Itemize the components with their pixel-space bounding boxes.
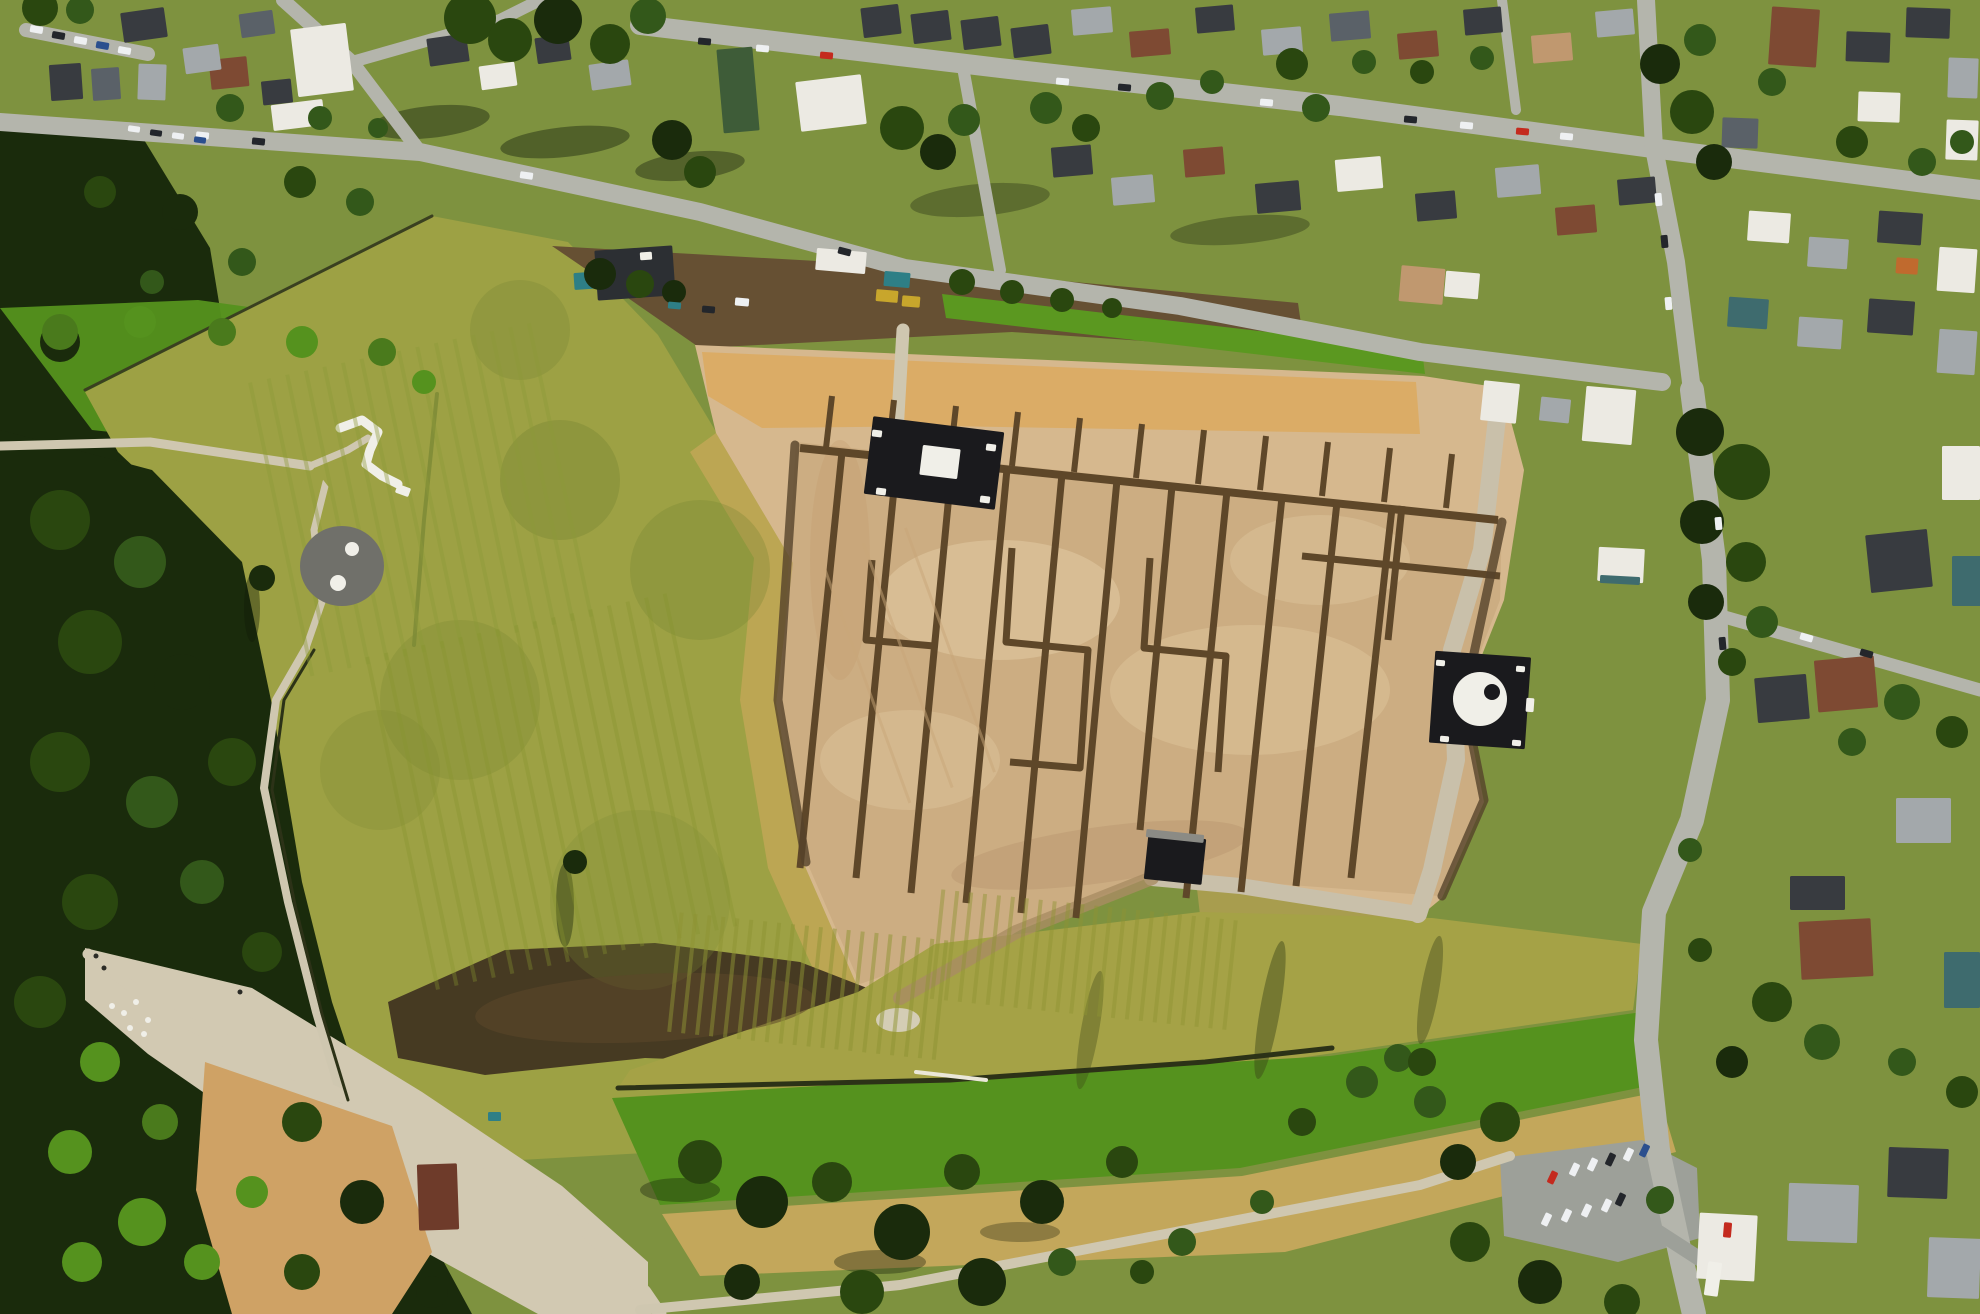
tree-shadow (980, 1222, 1060, 1242)
tree (84, 176, 116, 208)
tree (1168, 1228, 1196, 1256)
tree (488, 18, 532, 62)
park-shed (417, 1163, 459, 1230)
house (1255, 180, 1301, 214)
goose (133, 999, 139, 1005)
tree (1804, 1024, 1840, 1060)
tree (284, 166, 316, 198)
tree (1302, 94, 1330, 122)
house (1582, 386, 1637, 445)
plaza-circle (330, 575, 346, 591)
house (1397, 30, 1439, 59)
house-orange-roof (1895, 257, 1918, 274)
tree (1384, 1044, 1412, 1072)
house (1787, 1183, 1859, 1243)
tree (1950, 130, 1974, 154)
goose (121, 1010, 127, 1016)
house (1463, 6, 1503, 35)
tree (880, 106, 924, 150)
house (1129, 28, 1171, 57)
house (1727, 297, 1769, 330)
tree (1746, 606, 1778, 638)
tree (1908, 148, 1936, 176)
forest-canopy (126, 776, 178, 828)
shrub (412, 370, 436, 394)
car (1654, 193, 1662, 207)
tree (1346, 1066, 1378, 1098)
tree (652, 120, 692, 160)
tree (228, 248, 256, 276)
goose (109, 1003, 115, 1009)
tree (1450, 1222, 1490, 1262)
tank-foundation-notch (1484, 684, 1500, 700)
house (1877, 211, 1923, 246)
tree (662, 280, 686, 304)
tree (1714, 444, 1770, 500)
tree (1646, 1186, 1674, 1214)
house (1111, 174, 1155, 206)
tree (162, 194, 198, 230)
tree (874, 1204, 930, 1260)
tree (590, 24, 630, 64)
pad-north-white-center (919, 445, 960, 479)
tree (958, 1258, 1006, 1306)
house (1905, 7, 1950, 39)
house (1539, 396, 1571, 423)
house (1335, 156, 1384, 192)
house (1768, 6, 1820, 67)
hedge-tree (949, 269, 975, 295)
staging-car (668, 301, 682, 309)
house (1617, 176, 1657, 205)
tree (1470, 46, 1494, 70)
plaza-pad (300, 526, 384, 606)
tree (1946, 1076, 1978, 1108)
tree (1718, 648, 1746, 676)
tree (944, 1154, 980, 1190)
house (120, 7, 168, 43)
apartment-building (290, 23, 354, 97)
tree (584, 258, 616, 290)
forest-canopy (58, 610, 122, 674)
hedge-tree (1102, 298, 1122, 318)
tree (1020, 1180, 1064, 1224)
tree (1838, 728, 1866, 756)
goose (145, 1017, 151, 1023)
aerial-photo (0, 0, 1980, 1314)
car (698, 37, 712, 45)
house (1799, 918, 1874, 980)
pad-tab (872, 429, 883, 437)
maintenance-roof-vent (640, 252, 653, 261)
person (102, 966, 107, 971)
tree (626, 270, 654, 298)
house (1865, 529, 1933, 593)
tree (840, 1270, 884, 1314)
house (1947, 57, 1978, 98)
conifer (563, 850, 587, 874)
tree (308, 106, 332, 130)
car (820, 51, 834, 59)
house (1721, 117, 1758, 148)
pad-east-edge-white (1526, 698, 1535, 713)
teal-bench (488, 1112, 501, 1121)
pad-tab (1440, 736, 1449, 743)
tree (1146, 82, 1174, 110)
tree (1678, 838, 1702, 862)
tree (1888, 1048, 1916, 1076)
house (1329, 10, 1371, 41)
house (479, 62, 518, 91)
tree (1676, 408, 1724, 456)
tree (1670, 90, 1714, 134)
house (1183, 146, 1225, 177)
pad-tab (1436, 660, 1445, 667)
tree (1758, 68, 1786, 96)
forest-canopy (30, 732, 90, 792)
car (1404, 115, 1418, 123)
shrub (48, 1130, 92, 1174)
house (1867, 298, 1915, 335)
house (1845, 31, 1890, 63)
house (1896, 798, 1951, 843)
house (1927, 1237, 1980, 1299)
tree (1752, 982, 1792, 1022)
tree (282, 1102, 322, 1142)
tree (724, 1264, 760, 1300)
site-walkway (897, 330, 903, 432)
tree (812, 1162, 852, 1202)
shrub (184, 1244, 220, 1280)
staging-pickup (735, 297, 750, 306)
car (1260, 98, 1274, 106)
house (261, 78, 293, 105)
conifer (249, 565, 275, 591)
tree (1480, 1102, 1520, 1142)
person (238, 990, 243, 995)
shrub (236, 1176, 268, 1208)
car (1118, 83, 1132, 91)
shrub (286, 326, 318, 358)
tree (340, 1180, 384, 1224)
house (1944, 952, 1980, 1008)
commercial-white-roof (795, 74, 867, 132)
tree (1640, 44, 1680, 84)
tree (1936, 716, 1968, 748)
car (756, 44, 770, 52)
house (1747, 211, 1791, 244)
house (1937, 329, 1978, 376)
tree (140, 270, 164, 294)
house (1887, 1147, 1949, 1199)
pad-tab (1516, 666, 1525, 673)
house (1555, 204, 1597, 235)
forest-canopy (114, 536, 166, 588)
tree (1884, 684, 1920, 720)
pad-tab (980, 495, 991, 503)
car (1660, 235, 1668, 249)
tree (948, 104, 980, 136)
tree (1726, 542, 1766, 582)
excavator (876, 289, 899, 303)
house (1399, 265, 1446, 305)
car (1718, 637, 1726, 651)
tree (1130, 1260, 1154, 1284)
tree (1716, 1046, 1748, 1078)
rowhouse (960, 16, 1001, 50)
tree (1414, 1086, 1446, 1118)
goose (127, 1025, 133, 1031)
pad-tab (1512, 740, 1521, 747)
car (1056, 77, 1070, 85)
tree (678, 1140, 722, 1184)
house (1480, 380, 1520, 424)
forest-canopy (14, 976, 66, 1028)
forest-canopy (154, 654, 210, 710)
shrub (80, 1042, 120, 1082)
house (1754, 674, 1810, 723)
house (137, 64, 166, 101)
pad-tab (986, 443, 997, 451)
excavator (902, 295, 921, 308)
tree (1030, 92, 1062, 124)
tree (1106, 1146, 1138, 1178)
rowhouse (1010, 24, 1051, 58)
car (1664, 297, 1672, 311)
shrub (368, 338, 396, 366)
shrub (62, 1242, 102, 1282)
house (1595, 8, 1635, 37)
tree (1048, 1248, 1076, 1276)
tree (1410, 60, 1434, 84)
house (1857, 91, 1900, 122)
forest-canopy (30, 490, 90, 550)
tree (684, 156, 716, 188)
tree (216, 94, 244, 122)
shrub (118, 1198, 166, 1246)
forest-canopy (208, 738, 256, 786)
tree (1250, 1190, 1274, 1214)
house (1195, 4, 1235, 33)
rowhouse (910, 10, 951, 44)
house (1952, 556, 1980, 606)
forest-canopy (242, 932, 282, 972)
tree (1352, 50, 1376, 74)
rowhouse (860, 4, 901, 38)
tree (368, 118, 388, 138)
tree (1836, 126, 1868, 158)
house (1797, 317, 1843, 350)
hedge-tree (1050, 288, 1074, 312)
green-roof-building (716, 47, 759, 134)
tree (1288, 1108, 1316, 1136)
house (1071, 6, 1113, 35)
tree (1276, 48, 1308, 80)
tree (346, 188, 374, 216)
aerial-photo-stage (0, 0, 1980, 1314)
house (1790, 876, 1845, 910)
pad-tab (876, 487, 887, 495)
house (182, 44, 221, 75)
tree (1518, 1260, 1562, 1304)
plaza-circle (345, 542, 359, 556)
house (1942, 446, 1980, 500)
tree (1440, 1144, 1476, 1180)
teal-container (883, 271, 910, 288)
car (252, 137, 266, 145)
house (1807, 237, 1849, 270)
tree (736, 1176, 788, 1228)
tree (1408, 1048, 1436, 1076)
tree (1684, 24, 1716, 56)
house (1814, 655, 1878, 712)
shrub (208, 318, 236, 346)
house (1051, 144, 1093, 177)
tree (416, 1276, 448, 1308)
forest-canopy (180, 860, 224, 904)
house (1415, 190, 1457, 221)
tree (1072, 114, 1100, 142)
car (1714, 517, 1722, 531)
tree (1696, 144, 1732, 180)
shrub (142, 1104, 178, 1140)
conifer-shadow (556, 863, 574, 947)
house (1444, 271, 1480, 300)
house (1531, 32, 1573, 63)
tree (284, 1254, 320, 1290)
car (1460, 121, 1474, 129)
car (1560, 132, 1574, 140)
house (1937, 247, 1978, 294)
tree (920, 134, 956, 170)
tree (1200, 70, 1224, 94)
car (1516, 127, 1530, 135)
house (588, 59, 631, 90)
tank-foundation-circle (1453, 672, 1507, 726)
hedge-tree (1000, 280, 1024, 304)
house (91, 67, 121, 101)
shrub (42, 314, 78, 350)
staging-car (702, 305, 716, 313)
meadow-dark-patch (500, 420, 620, 540)
tree (1688, 584, 1724, 620)
red-pickup-truck (1723, 1222, 1732, 1238)
forest-canopy (62, 874, 118, 930)
person (94, 954, 99, 959)
goose (141, 1031, 147, 1037)
house (49, 63, 83, 101)
house (238, 10, 275, 38)
shrub (124, 306, 156, 338)
house (1495, 164, 1541, 198)
tree (1688, 938, 1712, 962)
